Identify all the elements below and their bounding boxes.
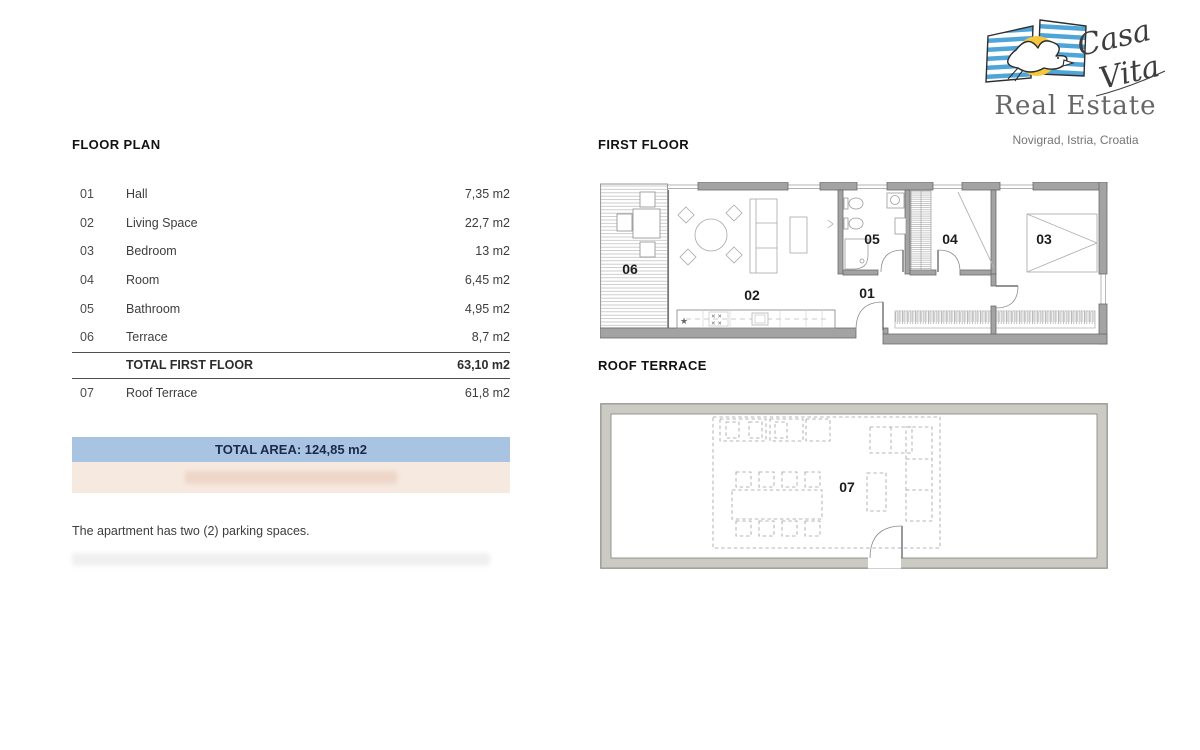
table-row: 02 Living Space 22,7 m2 bbox=[72, 209, 510, 238]
table-row: 03 Bedroom 13 m2 bbox=[72, 237, 510, 266]
room-name: Hall bbox=[126, 187, 465, 201]
area-table: 01 Hall 7,35 m2 02 Living Space 22,7 m2 … bbox=[72, 180, 510, 408]
hob-burners-icon: ✕ ✕ bbox=[711, 314, 722, 320]
redacted-text-line bbox=[72, 553, 490, 566]
diagonal-line bbox=[958, 192, 994, 268]
casa-vita-logo: Casa Vita bbox=[978, 16, 1168, 101]
room-area: 22,7 m2 bbox=[465, 216, 510, 230]
terrace-decking bbox=[601, 184, 669, 328]
dining-table bbox=[695, 219, 727, 251]
room-number: 04 bbox=[72, 273, 126, 287]
room-name: Bedroom bbox=[126, 244, 475, 258]
kitchen-star-icon: ★ bbox=[680, 317, 688, 327]
parking-note: The apartment has two (2) parking spaces… bbox=[72, 524, 310, 538]
table-row: 06 Terrace 8,7 m2 bbox=[72, 323, 510, 352]
toilet-tank bbox=[844, 198, 848, 209]
logo-location: Novigrad, Istria, Croatia bbox=[983, 133, 1168, 147]
chair bbox=[680, 249, 696, 265]
table-total-row: TOTAL FIRST FLOOR 63,10 m2 bbox=[72, 352, 510, 380]
room-number: 02 bbox=[72, 216, 126, 230]
arrow-marker bbox=[828, 220, 833, 228]
chair bbox=[678, 207, 694, 223]
sofa bbox=[750, 199, 777, 273]
tv-stand bbox=[790, 217, 807, 253]
room-name: Living Space bbox=[126, 216, 465, 230]
room-area: 7,35 m2 bbox=[465, 187, 510, 201]
page: Casa Vita Real Estate Novigrad, Istria, … bbox=[0, 0, 1200, 750]
room-name: Terrace bbox=[126, 330, 472, 344]
total-area-text: TOTAL AREA: 124,85 m2 bbox=[215, 442, 367, 457]
hob-burners-icon: ✕ ✕ bbox=[711, 321, 722, 327]
roof-terrace-plan: 07 bbox=[600, 403, 1108, 569]
toilet bbox=[849, 198, 863, 209]
room-area: 4,95 m2 bbox=[465, 302, 510, 316]
room-area: 6,45 m2 bbox=[465, 273, 510, 287]
room-number: 01 bbox=[72, 187, 126, 201]
logo-subtitle: Real Estate bbox=[983, 91, 1168, 121]
table-row: 05 Bathroom 4,95 m2 bbox=[72, 294, 510, 323]
table-row: 01 Hall 7,35 m2 bbox=[72, 180, 510, 209]
room-label-roof-terrace: 07 bbox=[839, 479, 855, 495]
living-room-furniture bbox=[678, 199, 807, 273]
roof-terrace-title: ROOF TERRACE bbox=[598, 358, 707, 373]
first-floor-title: FIRST FLOOR bbox=[598, 137, 689, 152]
total-area-banner: TOTAL AREA: 124,85 m2 bbox=[72, 437, 510, 462]
total-area: 63,10 m2 bbox=[457, 358, 510, 372]
price-banner bbox=[72, 462, 510, 493]
total-label: TOTAL FIRST FLOOR bbox=[126, 358, 457, 372]
bidet bbox=[849, 218, 863, 229]
floor-plan-title: FLOOR PLAN bbox=[72, 137, 161, 152]
chair bbox=[726, 205, 742, 221]
room-label-bedroom: 03 bbox=[1036, 231, 1052, 247]
room-label-room: 04 bbox=[942, 231, 958, 247]
room-name: Bathroom bbox=[126, 302, 465, 316]
room-label-hall: 01 bbox=[859, 285, 875, 301]
table-row: 07 Roof Terrace 61,8 m2 bbox=[72, 379, 510, 408]
room-label-terrace: 06 bbox=[622, 261, 638, 277]
first-floor-plan: ★ ✕ ✕ ✕ ✕ bbox=[600, 182, 1108, 346]
room-number: 03 bbox=[72, 244, 126, 258]
redacted-price-text bbox=[185, 471, 397, 484]
chair bbox=[726, 247, 742, 263]
room-number: 05 bbox=[72, 302, 126, 316]
room-area: 8,7 m2 bbox=[472, 330, 510, 344]
wall-segment bbox=[991, 306, 996, 334]
room-name: Room bbox=[126, 273, 465, 287]
kitchen-counter: ★ ✕ ✕ ✕ ✕ bbox=[677, 310, 835, 328]
room-area: 13 m2 bbox=[475, 244, 510, 258]
room-area: 61,8 m2 bbox=[465, 386, 510, 400]
room-name: Roof Terrace bbox=[126, 386, 465, 400]
bidet-tank bbox=[844, 218, 848, 229]
room-label-living: 02 bbox=[744, 287, 760, 303]
boiler bbox=[895, 218, 906, 234]
room-label-bathroom: 05 bbox=[864, 231, 880, 247]
table-row: 04 Room 6,45 m2 bbox=[72, 266, 510, 295]
room-number: 06 bbox=[72, 330, 126, 344]
room-number: 07 bbox=[72, 386, 126, 400]
